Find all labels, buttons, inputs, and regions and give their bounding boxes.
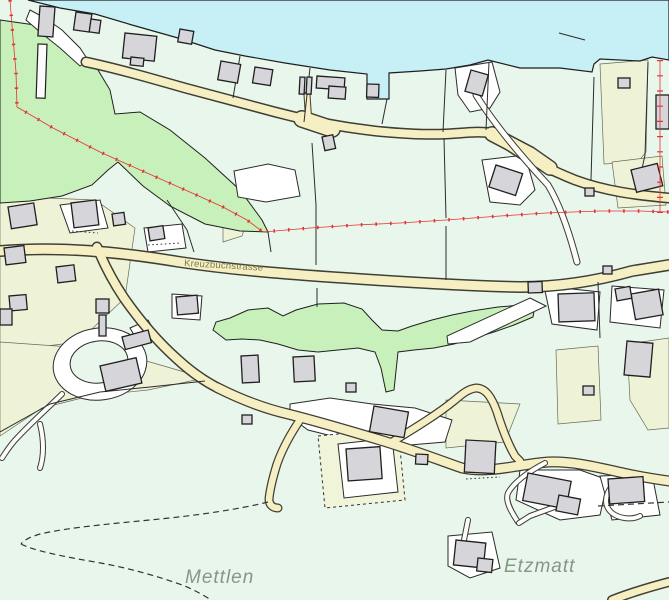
building	[242, 415, 252, 424]
building	[306, 77, 312, 94]
building	[624, 341, 653, 377]
building	[346, 383, 356, 392]
building	[38, 6, 55, 37]
building	[218, 61, 241, 83]
map-viewport[interactable]: Mettlen Etzmatt Kreuzbuchstrasse	[0, 0, 669, 600]
building	[618, 78, 630, 88]
building	[252, 67, 272, 86]
building	[322, 135, 336, 151]
map-canvas[interactable]: Mettlen Etzmatt Kreuzbuchstrasse	[0, 0, 669, 600]
parcel	[600, 60, 648, 164]
building	[369, 406, 408, 438]
building	[367, 84, 379, 97]
building	[464, 440, 496, 474]
building	[603, 266, 612, 274]
building	[148, 226, 165, 241]
building	[477, 558, 493, 572]
building	[36, 44, 47, 98]
building	[112, 212, 126, 226]
place-label-mettlen: Mettlen	[185, 567, 254, 588]
road-stub	[307, 95, 309, 124]
building	[558, 293, 595, 322]
building	[328, 86, 346, 99]
place-label-etzmatt: Etzmatt	[504, 556, 575, 577]
building	[241, 355, 259, 383]
building	[631, 289, 663, 319]
building	[583, 386, 594, 395]
building	[585, 188, 594, 196]
building	[608, 477, 645, 504]
building	[96, 299, 109, 313]
building	[656, 95, 669, 129]
building	[528, 282, 542, 293]
building	[99, 315, 106, 336]
building	[299, 77, 305, 94]
building	[122, 33, 156, 61]
building	[8, 203, 37, 229]
parcel-white	[234, 164, 300, 202]
building	[178, 29, 194, 44]
building	[71, 200, 99, 228]
building	[176, 295, 198, 315]
building	[346, 447, 382, 481]
building	[556, 495, 581, 515]
building	[4, 246, 26, 265]
building	[56, 265, 76, 283]
building	[130, 57, 144, 66]
building	[415, 454, 428, 465]
building	[615, 286, 632, 300]
building	[89, 19, 101, 33]
building	[0, 309, 12, 325]
building	[293, 356, 315, 382]
parcel	[556, 346, 601, 424]
